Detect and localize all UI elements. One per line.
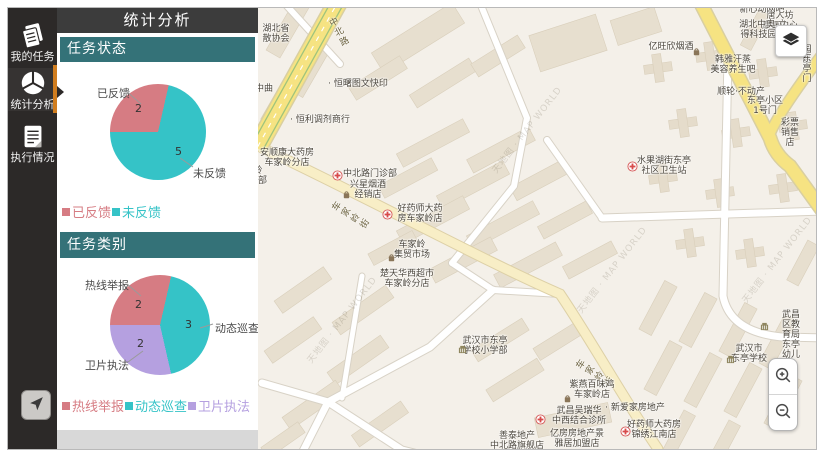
sidebar-item-execution[interactable]: 执行情况 [8, 121, 57, 164]
legend-item[interactable]: 动态巡查 [125, 396, 187, 415]
magnifier-minus-icon [773, 401, 793, 425]
pie-value-label: 5 [175, 145, 182, 158]
statistics-panel: 统计分析 任务状态 已反馈 未反馈 2 5 已反馈 未反馈 任务类别 热线举报 … [57, 8, 258, 449]
pie-callout-label: 热线举报 [85, 277, 129, 293]
active-item-arrow [57, 86, 64, 98]
pie-callout-label: 动态巡查 [215, 320, 259, 336]
legend-label: 未反馈 [122, 202, 161, 221]
pie-callout-label: 卫片执法 [85, 357, 129, 373]
legend-swatch [62, 402, 70, 410]
legend-swatch [188, 402, 196, 410]
checklist-icon [18, 121, 48, 151]
zoom-out-button[interactable] [769, 395, 797, 430]
pie-callout-label: 已反馈 [97, 85, 130, 101]
locate-button[interactable] [21, 390, 51, 420]
legend-label: 动态巡查 [135, 396, 187, 415]
legend-label: 卫片执法 [198, 396, 250, 415]
sidebar-item-label: 我的任务 [8, 51, 57, 63]
map-canvas[interactable]: 天地图 · MAP WORLD 天地图 · MAP WORLD 天地图 · MA… [258, 8, 816, 449]
section-header-task-category: 任务类别 [60, 232, 255, 258]
layers-icon [780, 28, 802, 54]
magnifier-plus-icon [773, 365, 793, 389]
navigation-arrow-icon [27, 394, 46, 417]
task-status-legend: 已反馈 未反馈 [62, 202, 162, 221]
panel-title: 统计分析 [57, 8, 258, 33]
pie-value-label: 2 [135, 298, 142, 311]
documents-icon [18, 20, 48, 50]
sidebar-item-statistics[interactable]: 统计分析 [8, 68, 57, 111]
pie-value-label: 2 [135, 102, 142, 115]
layers-button[interactable] [775, 25, 807, 57]
app-window: 我的任务 统计分析 执行情况 统计分析 任务状态 已反馈 未反馈 [8, 8, 816, 449]
section-header-task-status: 任务状态 [60, 37, 255, 62]
sidebar: 我的任务 统计分析 执行情况 [8, 8, 57, 449]
sidebar-item-label: 统计分析 [8, 99, 57, 111]
map-zoom-control [768, 358, 798, 431]
legend-swatch [62, 208, 70, 216]
legend-label: 热线举报 [72, 396, 124, 415]
pie-chart-icon [18, 68, 48, 98]
legend-item[interactable]: 未反馈 [112, 202, 161, 221]
pie-value-label: 2 [137, 337, 144, 350]
legend-item[interactable]: 卫片执法 [188, 396, 250, 415]
zoom-in-button[interactable] [769, 359, 797, 395]
pie-callout-label: 未反馈 [193, 165, 226, 181]
task-category-legend: 热线举报 动态巡查 卫片执法 [62, 396, 251, 415]
pie-value-label: 3 [185, 318, 192, 331]
legend-swatch [125, 402, 133, 410]
legend-item[interactable]: 已反馈 [62, 202, 111, 221]
sidebar-item-my-tasks[interactable]: 我的任务 [8, 20, 57, 63]
sidebar-item-label: 执行情况 [8, 152, 57, 164]
legend-item[interactable]: 热线举报 [62, 396, 124, 415]
legend-label: 已反馈 [72, 202, 111, 221]
screen: 我的任务 统计分析 执行情况 统计分析 任务状态 已反馈 未反馈 [0, 0, 824, 457]
legend-swatch [112, 208, 120, 216]
map-base-layer [258, 8, 816, 449]
